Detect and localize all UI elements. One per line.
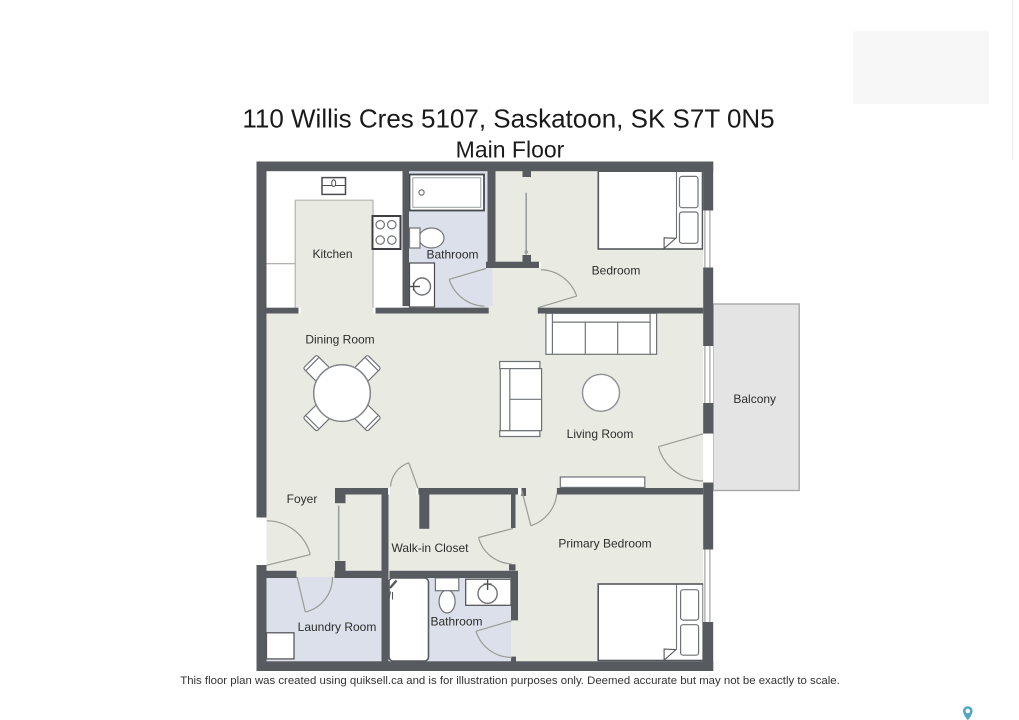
svg-text:Bedroom: Bedroom — [592, 264, 641, 278]
svg-text:This floor plan was created us: This floor plan was created using quikse… — [180, 675, 840, 687]
svg-text:110 Willis Cres 5107, Saskatoo: 110 Willis Cres 5107, Saskatoon, SK S7T … — [242, 104, 774, 134]
svg-text:Main Floor: Main Floor — [456, 137, 565, 163]
svg-text:Walk-in Closet: Walk-in Closet — [392, 541, 470, 555]
svg-text:Foyer: Foyer — [287, 492, 318, 506]
svg-text:Kitchen: Kitchen — [312, 247, 352, 261]
svg-text:Primary Bedroom: Primary Bedroom — [558, 537, 651, 551]
svg-text:Dining Room: Dining Room — [305, 333, 374, 347]
svg-text:Bathroom: Bathroom — [430, 615, 482, 629]
svg-text:Laundry Room: Laundry Room — [298, 620, 377, 634]
svg-text:Living Room: Living Room — [567, 427, 634, 441]
svg-text:Bathroom: Bathroom — [426, 248, 478, 262]
svg-text:Balcony: Balcony — [733, 392, 776, 406]
